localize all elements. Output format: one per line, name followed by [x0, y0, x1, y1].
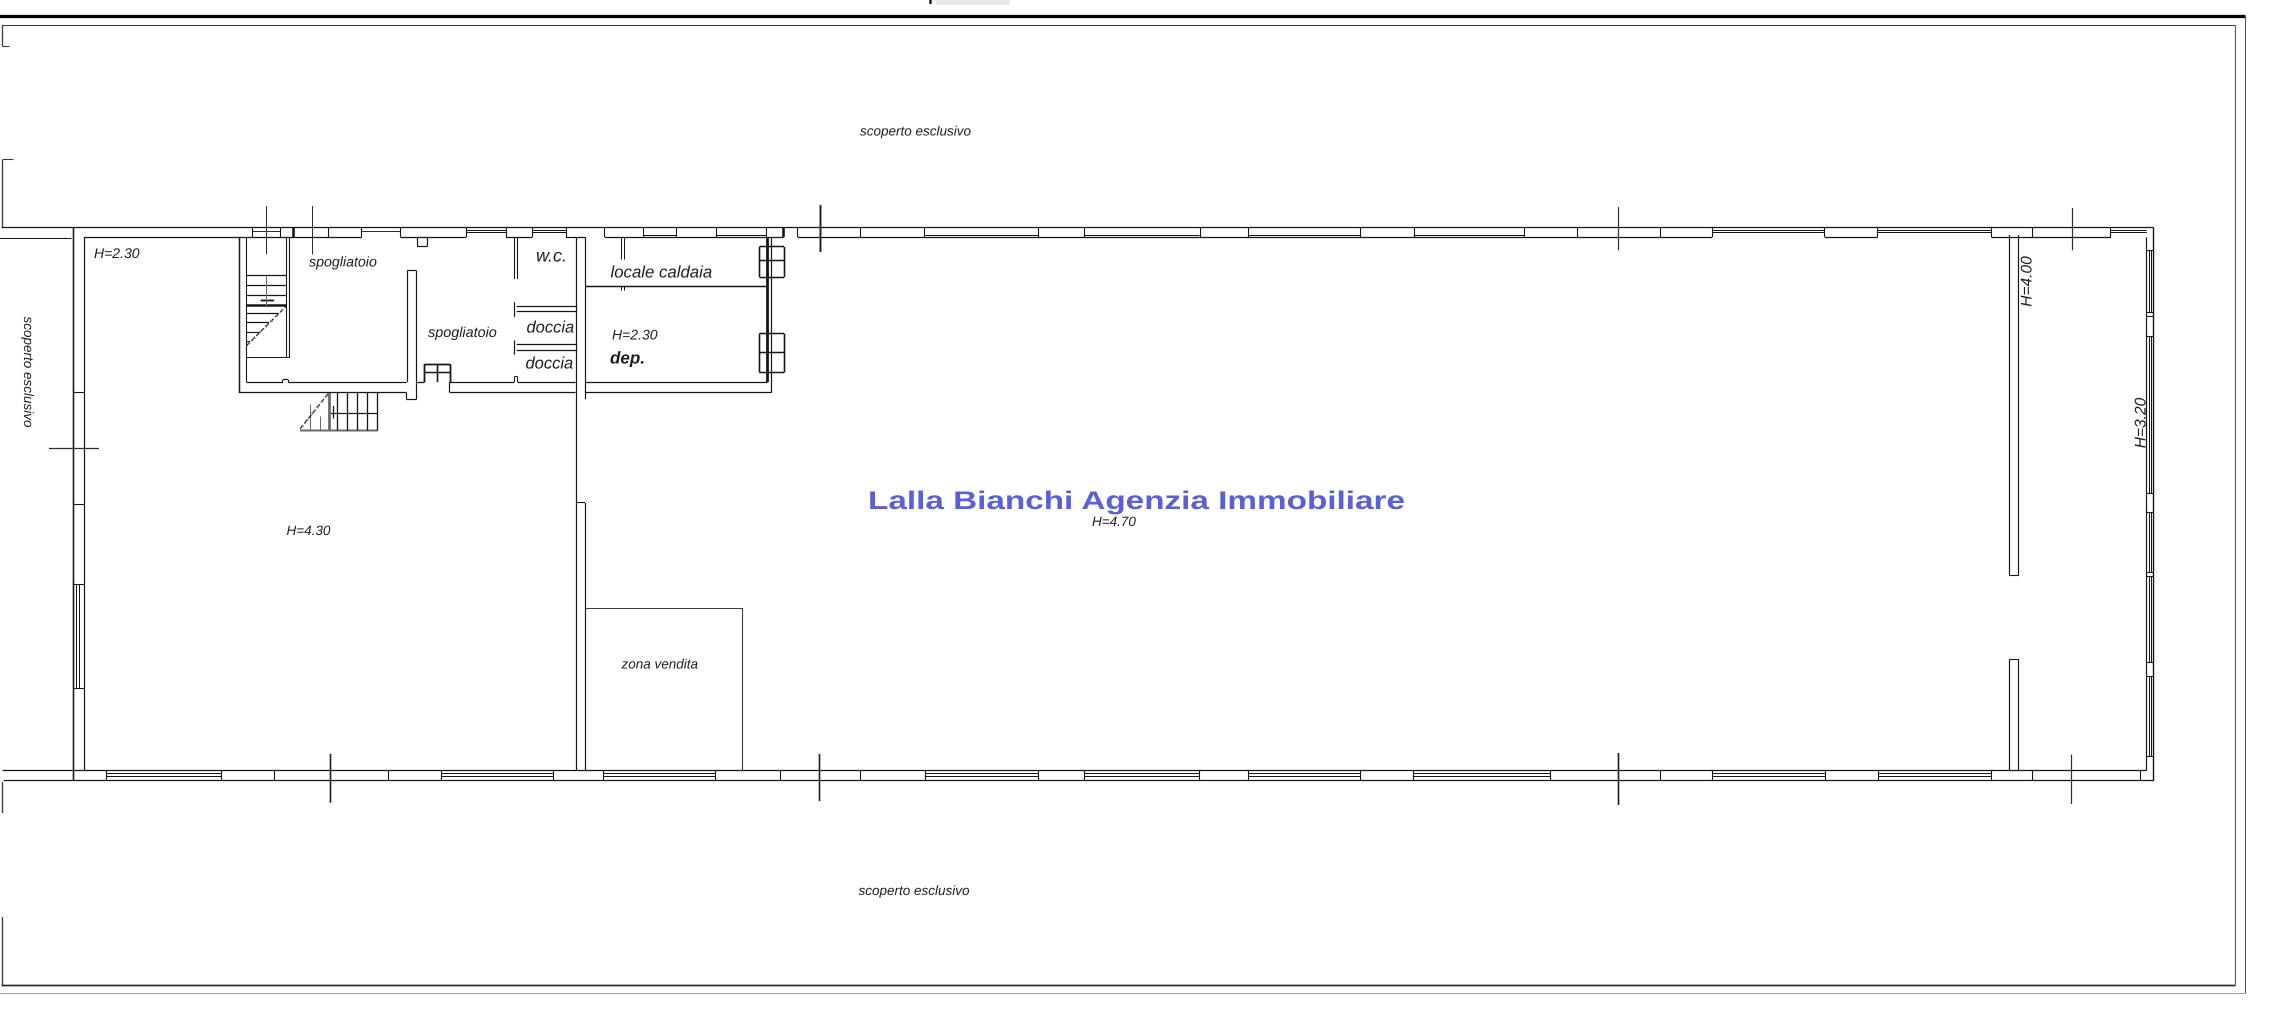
svg-text:Lalla Bianchi Agenzia Immobili: Lalla Bianchi Agenzia Immobiliare — [868, 487, 1405, 515]
svg-text:H=4.00: H=4.00 — [2019, 256, 2036, 307]
svg-text:locale caldaia: locale caldaia — [611, 263, 713, 282]
svg-text:scoperto esclusivo: scoperto esclusivo — [860, 124, 972, 139]
svg-text:w.c.: w.c. — [536, 246, 567, 266]
svg-text:zona vendita: zona vendita — [621, 657, 699, 672]
svg-text:spogliatoio: spogliatoio — [428, 325, 497, 341]
svg-text:H=2.30: H=2.30 — [94, 245, 140, 261]
svg-text:H=4.70: H=4.70 — [1092, 514, 1136, 529]
svg-text:H=4.30: H=4.30 — [287, 523, 331, 538]
svg-text:H=3.20: H=3.20 — [2133, 397, 2150, 448]
svg-text:scoperto esclusivo: scoperto esclusivo — [21, 316, 36, 428]
svg-text:doccia: doccia — [527, 319, 575, 337]
svg-text:dep.: dep. — [610, 349, 645, 368]
svg-text:doccia: doccia — [526, 355, 574, 373]
svg-text:scoperto esclusivo: scoperto esclusivo — [858, 883, 970, 898]
svg-text:spogliatoio: spogliatoio — [309, 255, 377, 271]
svg-text:H=2.30: H=2.30 — [612, 327, 658, 343]
